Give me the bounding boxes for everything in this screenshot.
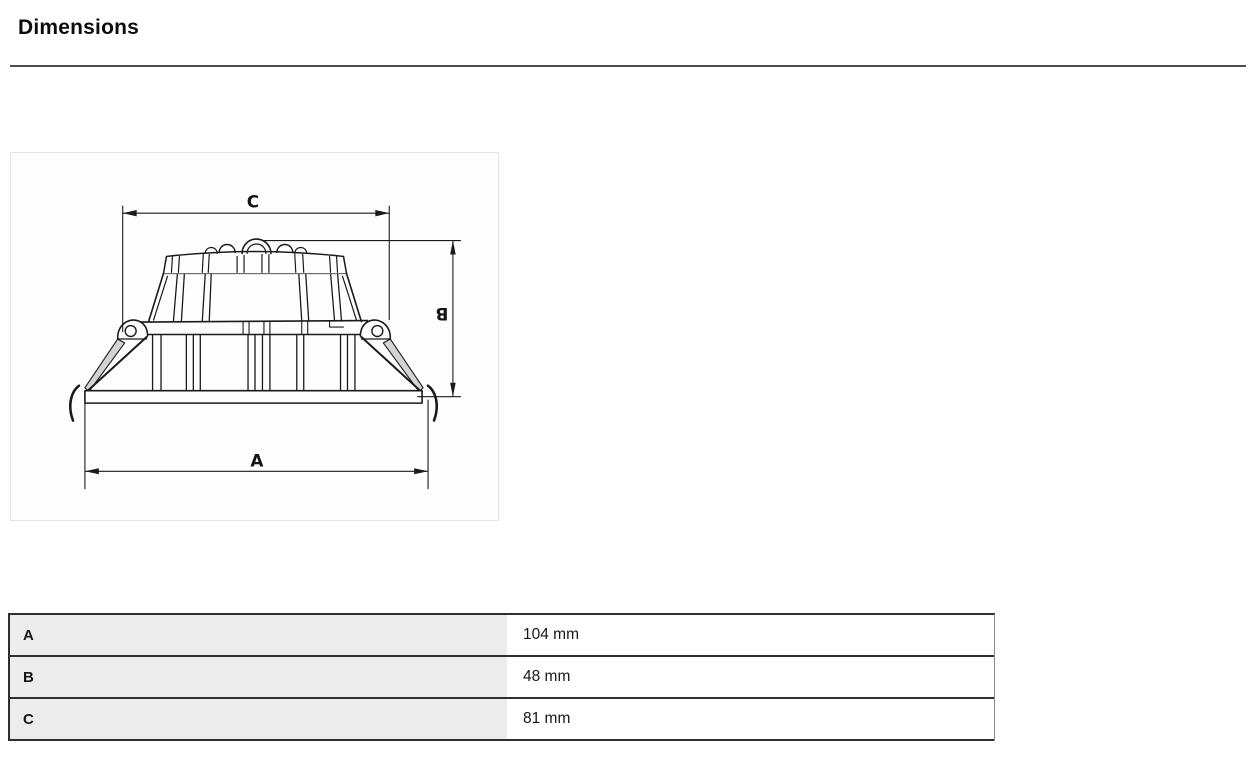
table-row: A 104 mm: [10, 615, 994, 657]
dim-label-c: C: [247, 192, 259, 212]
arrowhead-up-icon: [450, 241, 456, 255]
dimension-value-cell: 104 mm: [507, 615, 994, 655]
dim-label-a: A: [250, 450, 263, 470]
dimension-value-cell: 81 mm: [507, 699, 994, 739]
trim-edge-left: [70, 386, 79, 421]
table-row: B 48 mm: [10, 657, 994, 699]
arrowhead-left-icon: [123, 210, 137, 216]
dimensions-table: A 104 mm B 48 mm C 81 mm: [8, 613, 995, 741]
dimension-value-cell: 48 mm: [507, 657, 994, 697]
arrowhead-right-icon: [414, 468, 428, 474]
dimension-key-cell: C: [10, 699, 507, 739]
dimension-key-cell: B: [10, 657, 507, 697]
spring-clip-left: [85, 320, 148, 392]
arrowhead-right-icon: [375, 210, 389, 216]
dimension-a: A: [85, 400, 428, 490]
page-title: Dimensions: [18, 16, 139, 40]
downlight-drawing: C B A: [11, 153, 498, 520]
can-fins: [153, 335, 355, 390]
title-divider: [10, 65, 1246, 67]
arrowhead-left-icon: [85, 468, 99, 474]
dim-label-b: B: [436, 304, 449, 324]
trim-edge-right: [428, 386, 437, 421]
dimension-key-cell: A: [10, 615, 507, 655]
mounting-plate: [141, 321, 368, 335]
spring-clip-right: [360, 320, 423, 392]
arrowhead-down-icon: [450, 383, 456, 397]
fixture-outline: [70, 239, 436, 421]
trim-bezel: [70, 386, 436, 421]
dimension-diagram: C B A: [10, 152, 499, 521]
table-row: C 81 mm: [10, 699, 994, 741]
